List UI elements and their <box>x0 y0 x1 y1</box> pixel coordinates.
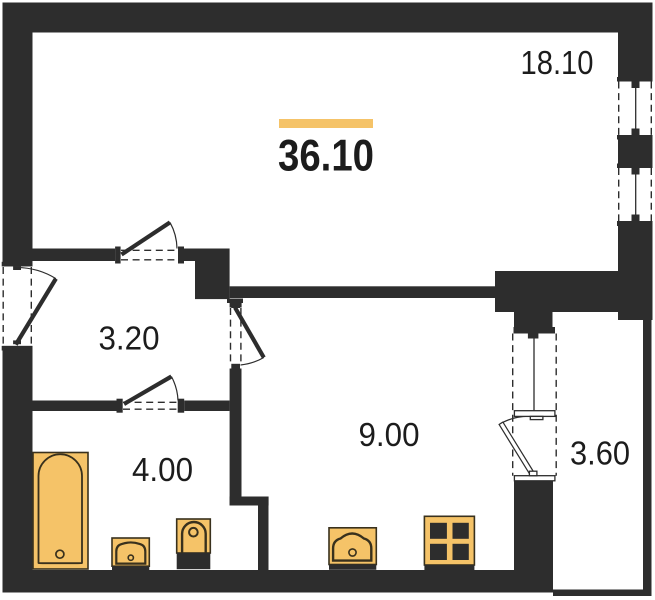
svg-text:3.60: 3.60 <box>570 435 630 472</box>
svg-text:4.00: 4.00 <box>132 451 193 488</box>
svg-text:36.10: 36.10 <box>278 132 374 181</box>
svg-text:9.00: 9.00 <box>359 416 420 453</box>
svg-text:18.10: 18.10 <box>521 44 594 81</box>
svg-text:3.20: 3.20 <box>99 320 160 357</box>
